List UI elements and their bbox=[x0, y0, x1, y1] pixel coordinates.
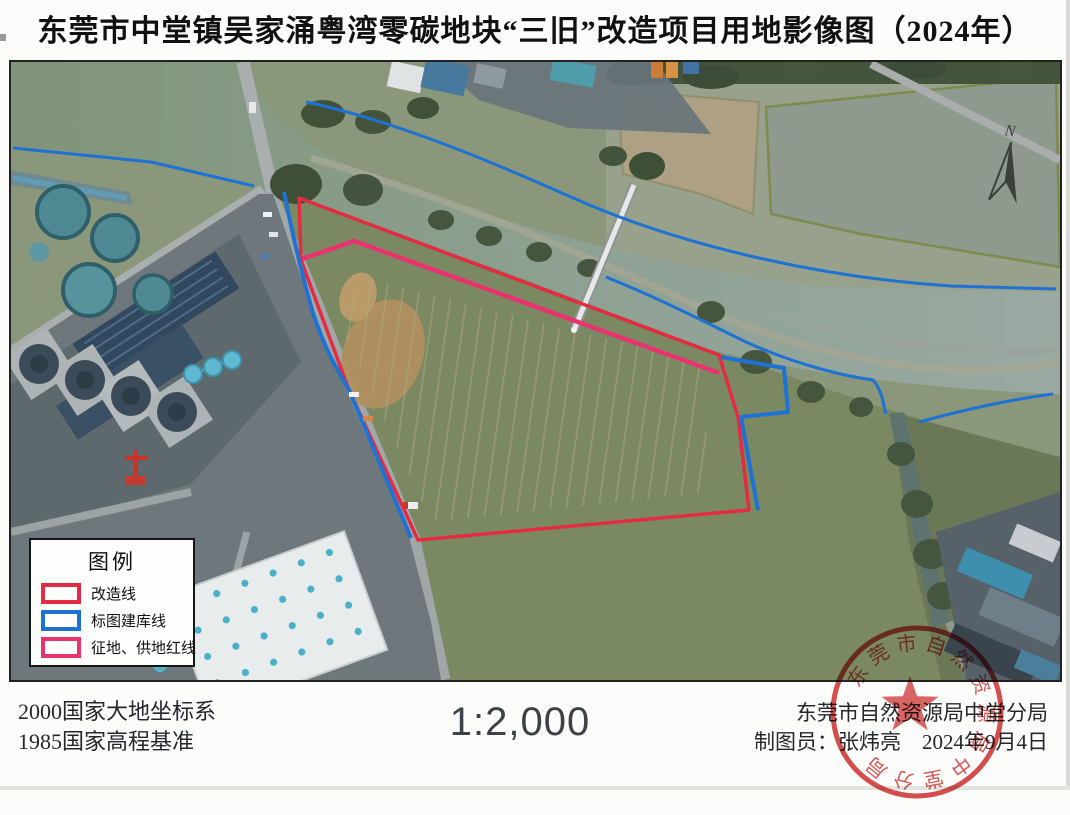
scan-edge-right bbox=[1066, 0, 1070, 790]
datum-line1: 2000国家大地坐标系 bbox=[18, 697, 216, 727]
agency-block: 东莞市自然资源局中堂分局 制图员：张炜亮 2024年9月4日 bbox=[620, 699, 1060, 758]
legend: 图例 改造线 标图建库线 征地、供地红线 bbox=[29, 538, 195, 667]
legend-title: 图例 bbox=[41, 546, 183, 576]
mapping-db-line-swatch bbox=[41, 610, 81, 631]
renovation-line-swatch bbox=[41, 583, 81, 604]
legend-item-acquisition: 征地、供地红线 bbox=[41, 637, 183, 658]
legend-item-mapping-db: 标图建库线 bbox=[41, 610, 183, 631]
acquisition-line-swatch bbox=[41, 637, 81, 658]
cartographer-line: 制图员：张炜亮 2024年9月4日 bbox=[620, 728, 1048, 757]
agency-name: 东莞市自然资源局中堂分局 bbox=[620, 699, 1048, 728]
scan-mark bbox=[0, 34, 6, 41]
legend-item-renovation: 改造线 bbox=[41, 583, 183, 604]
map-scale: 1:2,000 bbox=[380, 700, 660, 745]
map-frame: N 图例 改造线 标图建库线 征地、供地红线 bbox=[9, 60, 1062, 682]
page-title: 东莞市中堂镇吴家涌粤湾零碳地块“三旧”改造项目用地影像图（2024年） bbox=[0, 6, 1070, 50]
scan-edge-bottom bbox=[0, 786, 1070, 790]
scanned-map-page: { "title": "东莞市中堂镇吴家涌粤湾零碳地块“三旧”改造项目用地影像图… bbox=[0, 0, 1070, 790]
datum-block: 2000国家大地坐标系 1985国家高程基准 bbox=[18, 697, 216, 758]
datum-line2: 1985国家高程基准 bbox=[18, 727, 216, 757]
